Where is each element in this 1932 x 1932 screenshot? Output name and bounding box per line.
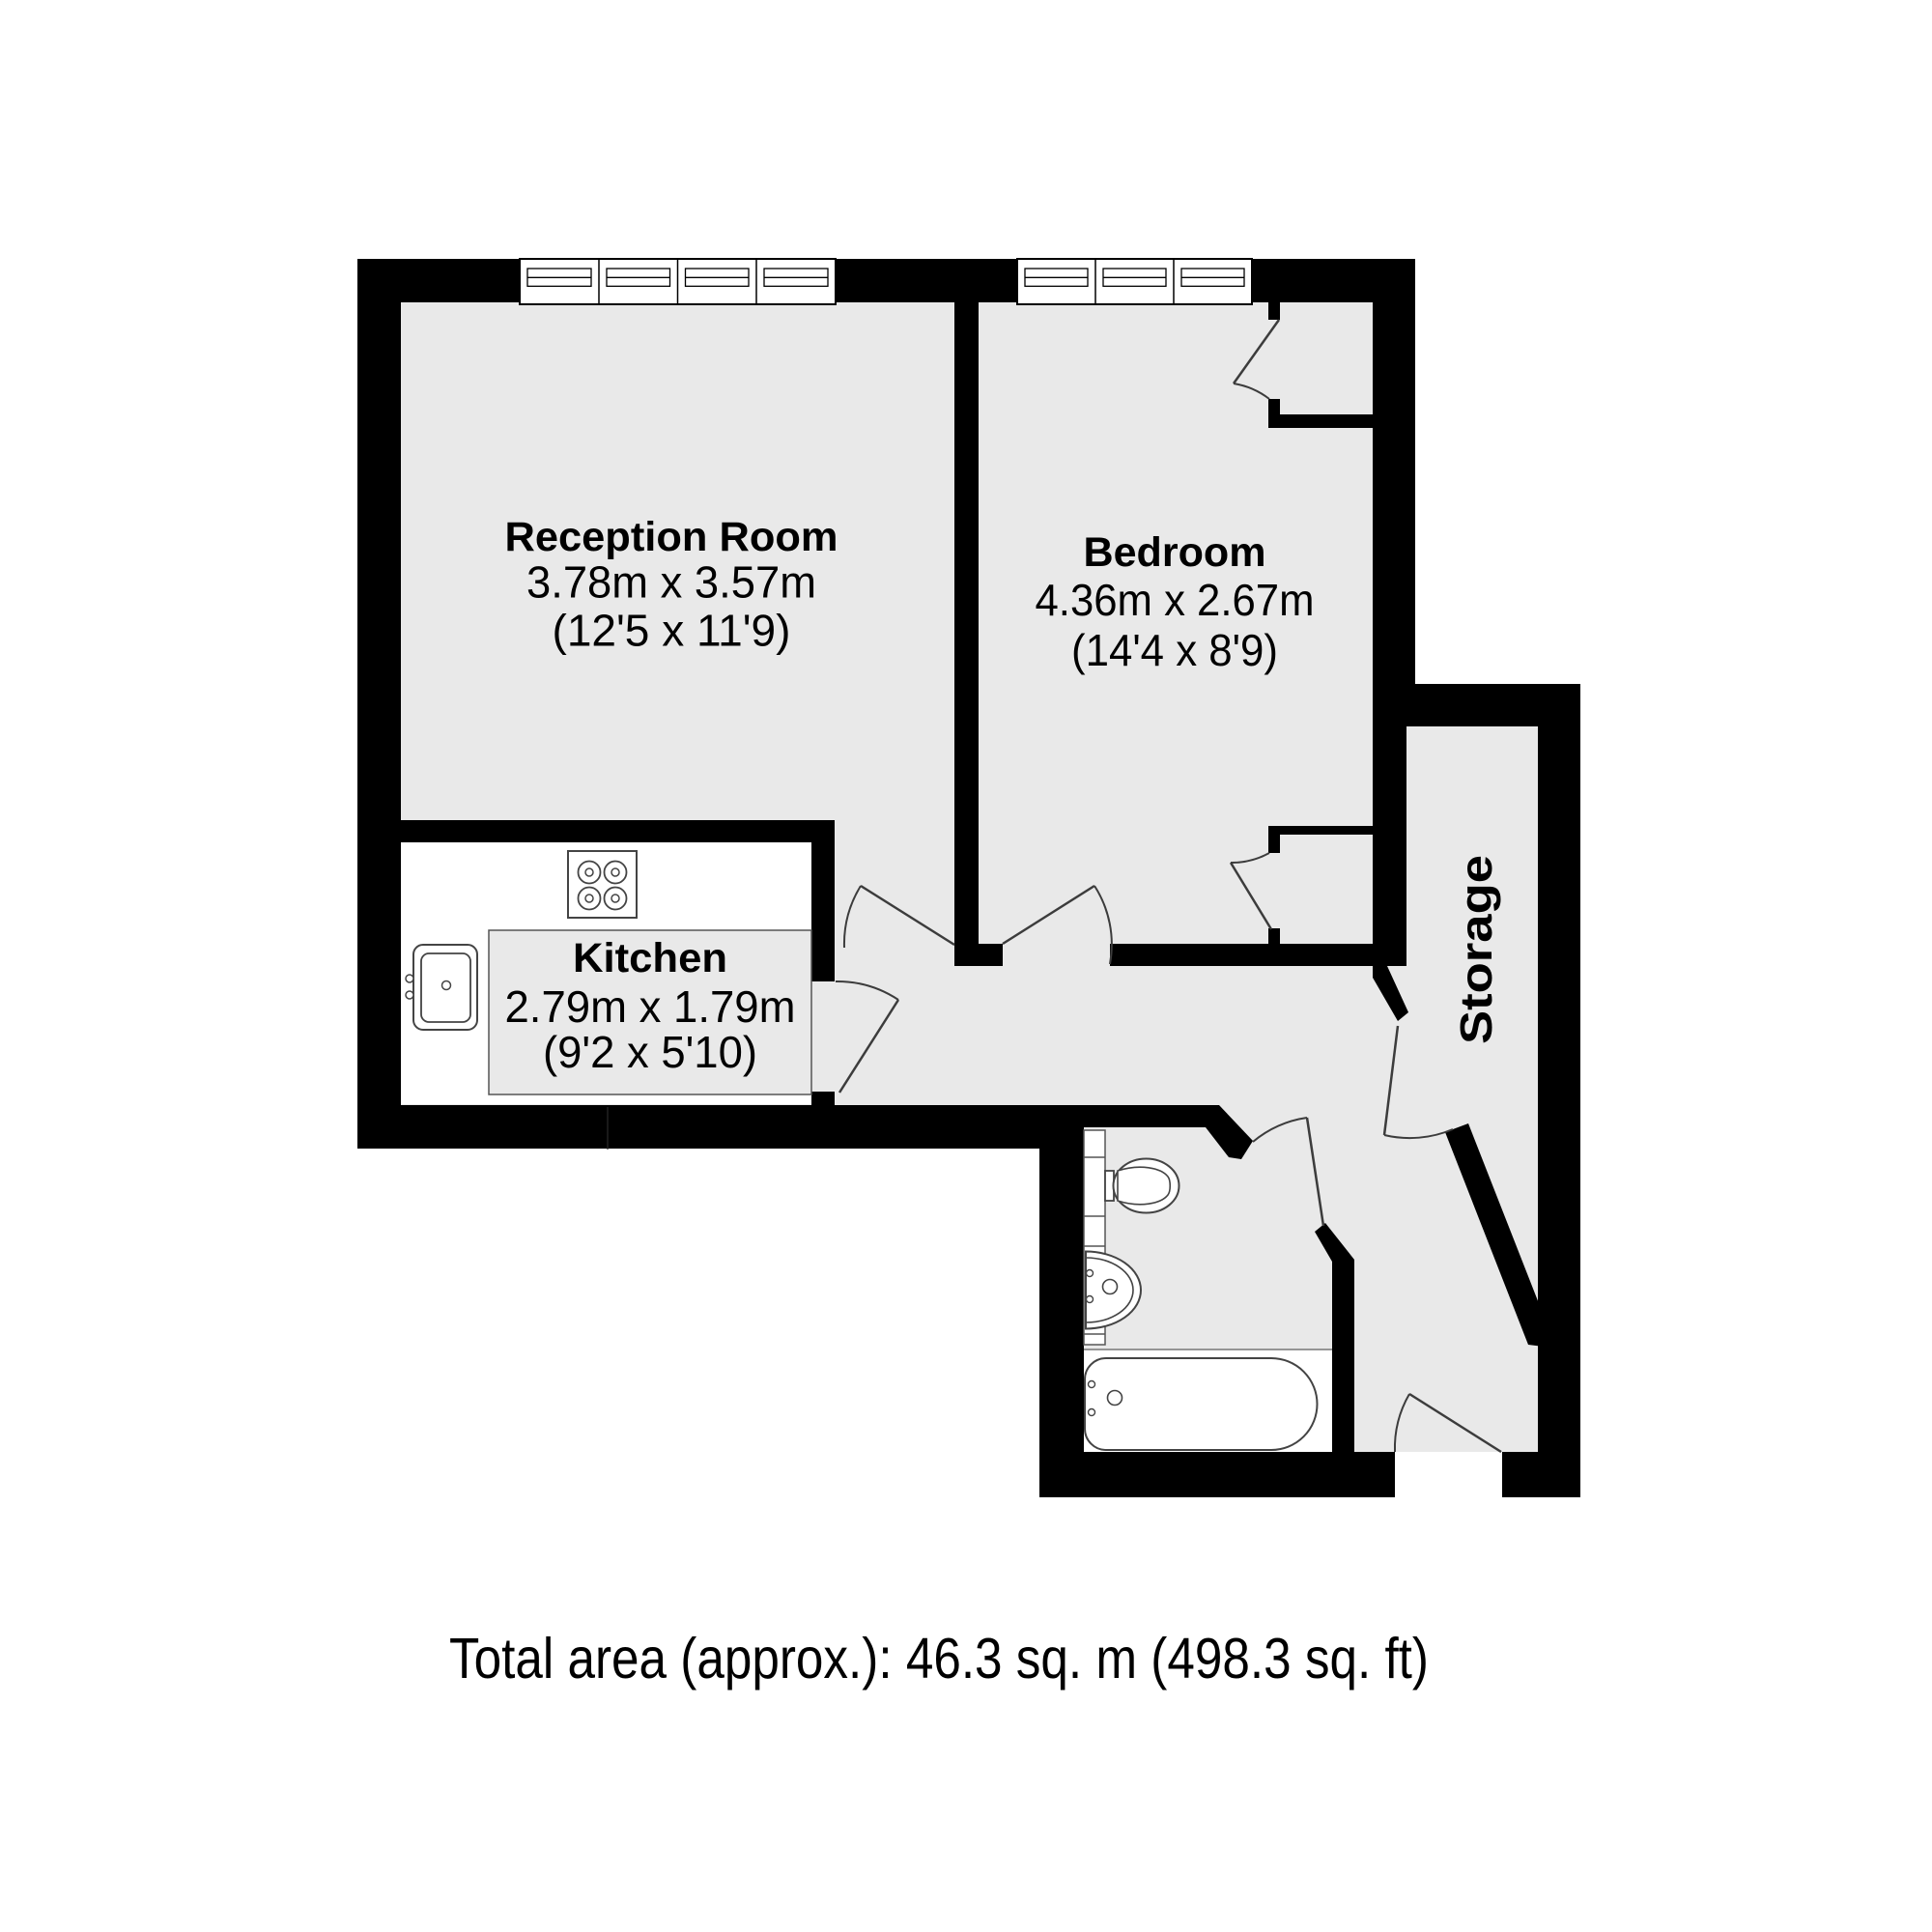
svg-text:Total area (approx.): 46.3 sq.: Total area (approx.): 46.3 sq. m (498.3 …	[449, 1627, 1429, 1690]
svg-text:2.79m x 1.79m: 2.79m x 1.79m	[505, 981, 796, 1032]
svg-text:Bedroom: Bedroom	[1084, 529, 1266, 576]
svg-text:Kitchen: Kitchen	[573, 935, 727, 981]
svg-text:(12'5 x 11'9): (12'5 x 11'9)	[553, 606, 791, 656]
svg-text:3.78m x 3.57m: 3.78m x 3.57m	[526, 557, 816, 608]
svg-text:Storage: Storage	[1451, 855, 1501, 1044]
svg-text:(14'4 x 8'9): (14'4 x 8'9)	[1071, 625, 1278, 675]
svg-text:4.36m x 2.67m: 4.36m x 2.67m	[1036, 575, 1315, 625]
svg-text:(9'2 x 5'10): (9'2 x 5'10)	[543, 1027, 757, 1077]
svg-text:Reception Room: Reception Room	[505, 514, 838, 560]
